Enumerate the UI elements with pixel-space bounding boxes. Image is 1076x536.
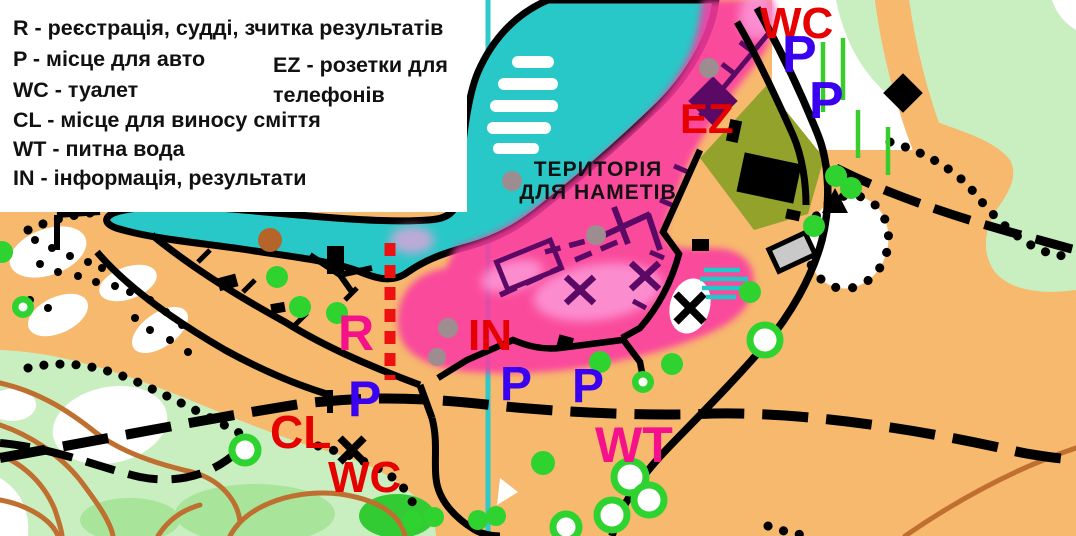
label-ez: EZ (680, 95, 734, 142)
legend-item-cl: CL - місце для виносу сміття (13, 108, 321, 133)
label-p-center-2: P (572, 360, 604, 413)
legend-item-p: P - місце для авто (13, 47, 205, 72)
legend-item-ez: EZ - розетки для телефонів (273, 50, 448, 110)
label-p-center-1: P (500, 358, 532, 411)
label-in: IN (468, 311, 512, 360)
legend-item-wt: WT - питна вода (13, 137, 185, 162)
legend-ez-line-1: EZ - розетки для (273, 50, 448, 80)
label-p-left: P (348, 371, 381, 427)
knoll-brown-dot (258, 228, 282, 252)
label-wt: WT (595, 417, 673, 473)
label-p-top-2: P (809, 72, 844, 130)
tent-area-label-1: ТЕРИТОРІЯ (534, 158, 663, 181)
label-wc-bottom: WC (328, 453, 401, 502)
legend-item-r: R - реєстрація, судді, зчитка результаті… (13, 16, 443, 41)
label-cl: CL (270, 406, 331, 458)
legend-box: R - реєстрація, судді, зчитка результаті… (0, 0, 467, 212)
tent-area-label-2: ДЛЯ НАМЕТІВ (519, 181, 676, 204)
legend-item-in: IN - інформація, результати (13, 166, 306, 191)
label-r: R (338, 305, 374, 361)
legend-ez-line-2: телефонів (273, 80, 448, 110)
legend-item-wc: WC - туалет (13, 78, 138, 103)
event-map: WC P P EZ ТЕРИТОРІЯ ДЛЯ НАМЕТІВ R IN P P… (0, 0, 1076, 536)
